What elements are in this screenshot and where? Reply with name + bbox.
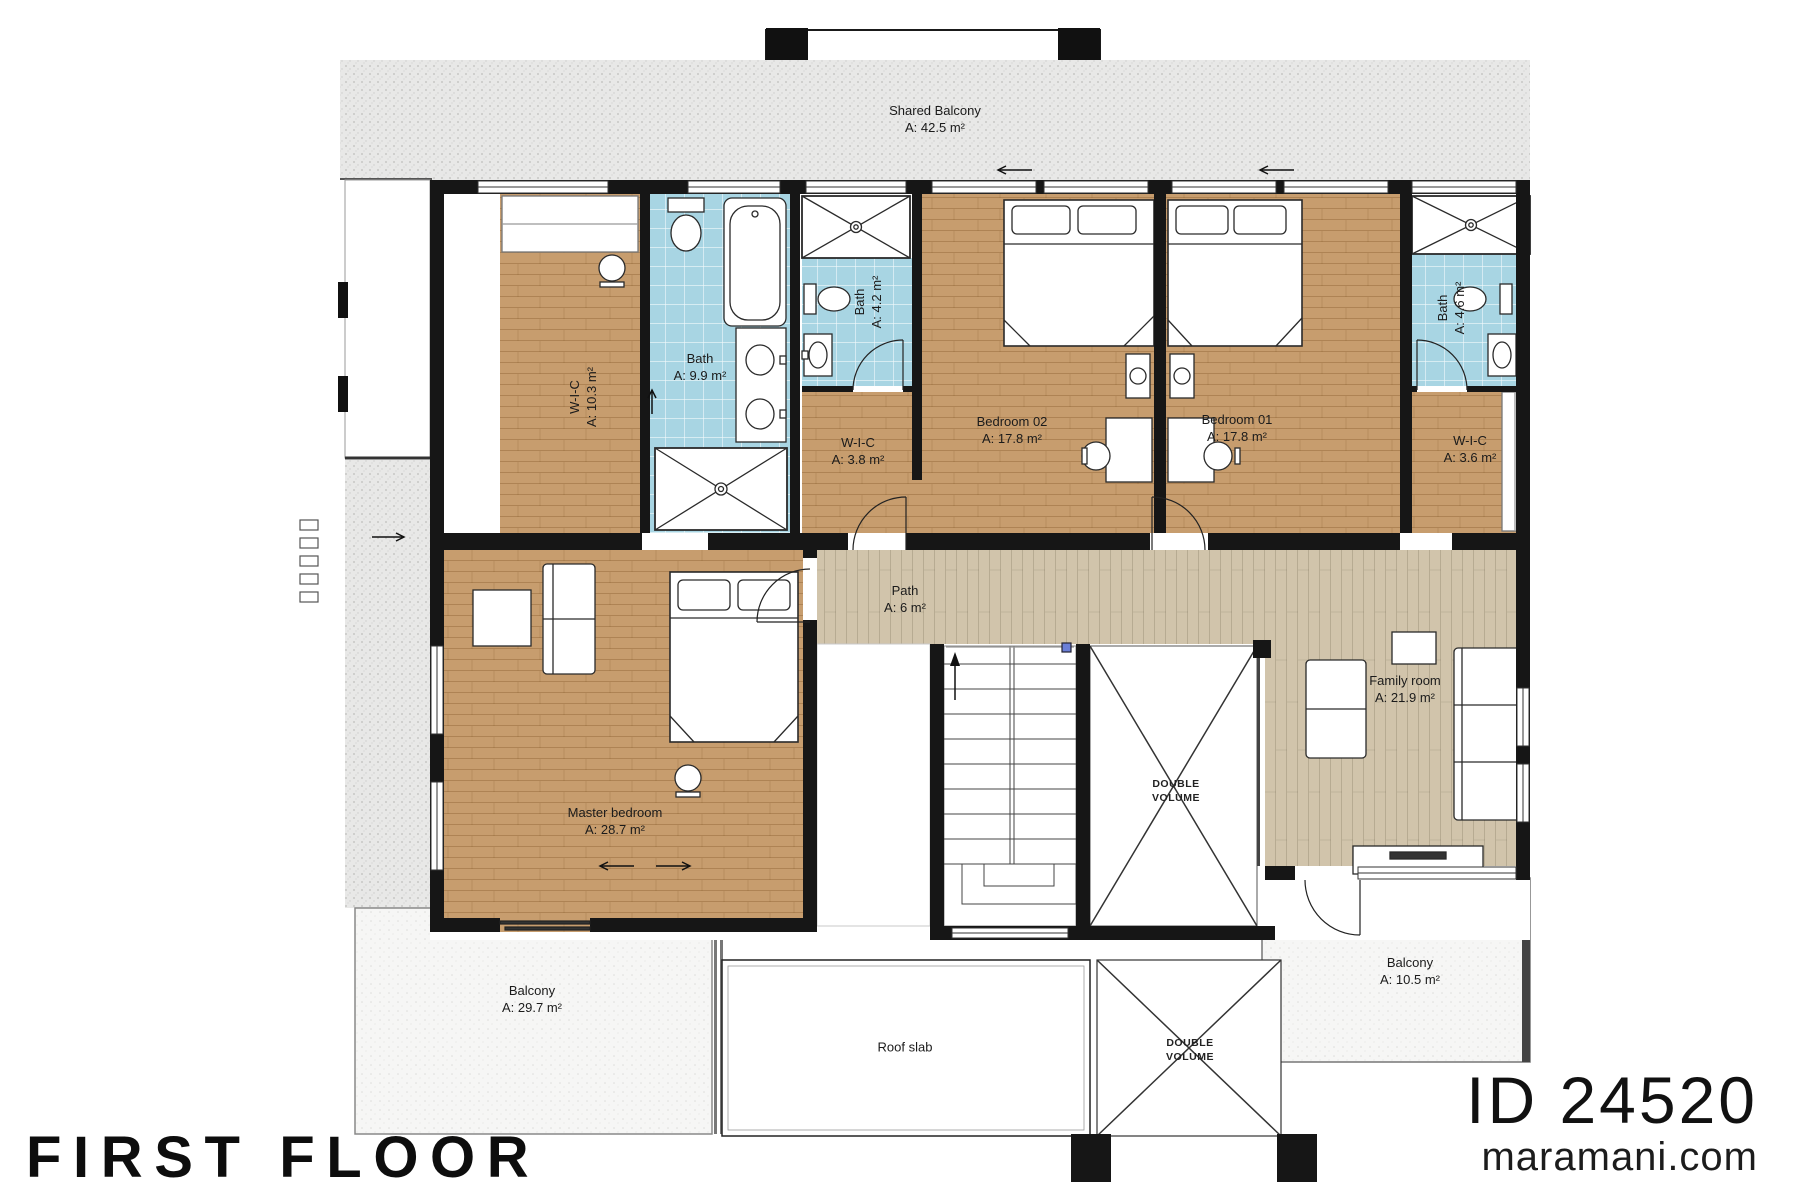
room-label-bedroom01: Bedroom 01 A: 17.8 m² [1202,412,1273,446]
pillow-icon [1234,206,1286,234]
room-name: Balcony [502,983,562,1000]
room-area: A: 4.2 m² [869,276,886,329]
ladder-detail [300,520,318,602]
sink-icon [746,399,774,429]
pillow-icon [1078,206,1136,234]
room-name: Balcony [1380,955,1440,972]
sink-icon [746,345,774,375]
wardrobe-icon [502,196,638,252]
room-label-wic-bedroom01: W-I-C A: 3.6 m² [1444,433,1497,467]
room-area: A: 10.3 m² [584,367,601,427]
pillow-icon [1012,206,1070,234]
room-label-double-volume-lower: DOUBLE VOLUME [1166,1036,1214,1064]
sink-icon [1488,334,1516,376]
room-area: A: 21.9 m² [1369,690,1441,707]
stool-icon [1082,442,1110,470]
room-label-roof-slab: Roof slab [878,1040,933,1057]
side-table-icon [473,590,531,646]
toilet-icon [804,284,850,314]
room-name: Bedroom 02 [977,414,1048,431]
room-label-balcony-left: Balcony A: 29.7 m² [502,983,562,1017]
bed-icon [670,572,798,742]
room-name: Roof slab [878,1040,933,1057]
nightstand-icon [1126,354,1150,398]
room-name: Bath [1435,282,1452,335]
room-name: W-I-C [1444,433,1497,450]
bed-icon [1168,200,1302,346]
room-name: Bath [852,276,869,329]
left-porch-area [345,180,430,458]
room-name: Family room [1369,673,1441,690]
floor-plan: Shared Balcony A: 42.5 m² W-I-C A: 10.3 … [0,0,1800,1200]
room-area: A: 4.6 m² [1452,282,1469,335]
plan-id: ID 24520 [1466,1066,1758,1135]
room-area: A: 28.7 m² [568,822,663,839]
room-area: A: 42.5 m² [889,120,981,137]
sofa-icon [1454,648,1524,820]
balcony-left-area [355,908,712,1134]
floor-title: FIRST FLOOR [26,1124,540,1191]
room-area: A: 9.9 m² [674,368,727,385]
room-label-bath-bedroom01: Bath A: 4.6 m² [1435,282,1469,335]
room-area: A: 6 m² [884,600,926,617]
sofa-icon [543,564,595,674]
vanity-icon [736,328,786,442]
stool-icon [599,255,625,287]
room-area: A: 3.6 m² [1444,450,1497,467]
pillow-icon [678,580,730,610]
armchair-icon [1306,660,1366,758]
bed-icon [1004,200,1154,346]
side-table-icon [1392,632,1436,664]
bathtub-icon [724,198,786,326]
website-url: maramani.com [1466,1135,1758,1180]
shower-icon [802,196,910,258]
room-name: Master bedroom [568,805,663,822]
room-label-balcony-right: Balcony A: 10.5 m² [1380,955,1440,989]
room-label-path: Path A: 6 m² [884,583,926,617]
shower-icon [655,448,787,530]
room-label-family-room: Family room A: 21.9 m² [1369,673,1441,707]
room-name: Bath [674,351,727,368]
room-area: A: 10.5 m² [1380,972,1440,989]
left-side-yard-area [345,460,430,908]
stool-icon [675,765,701,797]
room-label-bedroom02: Bedroom 02 A: 17.8 m² [977,414,1048,448]
room-name: Shared Balcony [889,103,981,120]
branding-block: ID 24520 maramani.com [1466,1066,1758,1180]
room-label-double-volume-upper: DOUBLE VOLUME [1152,777,1200,805]
room-area: A: 17.8 m² [1202,429,1273,446]
sink-icon [802,334,832,376]
room-label-bath-shared: Bath A: 4.2 m² [852,276,886,329]
room-area: A: 3.8 m² [832,452,885,469]
room-label-shared-balcony: Shared Balcony A: 42.5 m² [889,103,981,137]
desk-icon [1106,418,1152,482]
room-area: A: 29.7 m² [502,1000,562,1017]
toilet-icon [668,198,704,251]
corridor-marker [1062,643,1071,652]
pillow-icon [1176,206,1228,234]
room-area: A: 17.8 m² [977,431,1048,448]
room-name: Path [884,583,926,600]
room-label-wic-bedroom02: W-I-C A: 3.8 m² [832,435,885,469]
room-label-bath-master: Bath A: 9.9 m² [674,351,727,385]
shower-icon [1412,196,1530,254]
room-name: Bedroom 01 [1202,412,1273,429]
room-name: W-I-C [567,367,584,427]
room-label-master-bedroom: Master bedroom A: 28.7 m² [568,805,663,839]
room-name: W-I-C [832,435,885,452]
void-area [817,644,930,926]
room-label-wic-master: W-I-C A: 10.3 m² [567,367,601,427]
nightstand-icon [1170,354,1194,398]
